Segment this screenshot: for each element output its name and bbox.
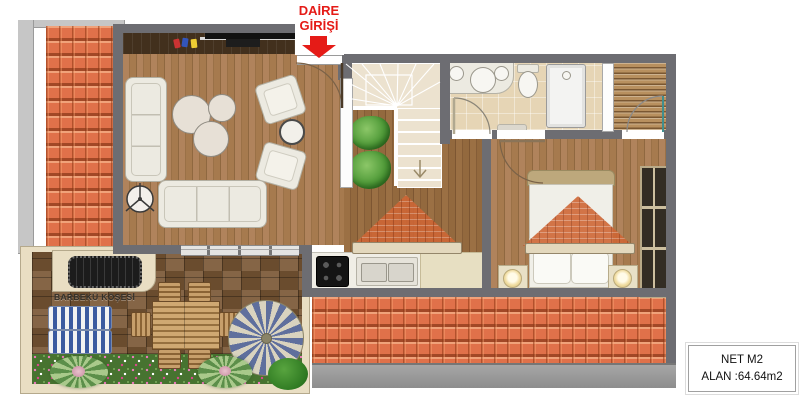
vanity-sink-left — [449, 66, 464, 81]
wall-bedroom-left — [482, 130, 491, 297]
lounger-1 — [48, 306, 112, 330]
barbecue-corner-label: BARBEKÜ KÖŞESİ — [54, 292, 135, 302]
living-terrace-window — [181, 245, 299, 256]
vanity-basin — [470, 67, 496, 93]
side-table — [279, 119, 305, 145]
barbecue-grill — [68, 256, 142, 288]
bedroom-door-gap — [497, 130, 545, 139]
cooktop — [316, 256, 349, 287]
balcony-partition — [602, 63, 614, 132]
dining-table — [152, 301, 220, 350]
net-area-box: NET M2 ALAN :64.64m2 — [688, 345, 796, 392]
balcony-door-gap — [622, 130, 664, 139]
kitchen-counter-beige — [420, 252, 484, 291]
kitchen-sink-unit — [356, 257, 418, 286]
left-roof-tiles — [46, 26, 114, 252]
armchair-seat — [263, 82, 299, 117]
entrance-label: DAİRE GİRİŞİ — [276, 4, 362, 33]
sofa-cushions — [131, 83, 161, 176]
parasol-pole — [261, 333, 272, 344]
agave-center-2 — [219, 366, 231, 376]
dining-table-split — [184, 301, 185, 348]
tv-stand — [226, 39, 260, 47]
dining-chair-1 — [158, 282, 181, 302]
sofa-cushions — [164, 186, 261, 222]
dining-chair-2 — [188, 282, 211, 302]
wall-top-right — [344, 54, 676, 63]
tv-console-books — [174, 37, 202, 49]
bed-duvet-left — [533, 250, 571, 284]
vanity-sink-right — [494, 66, 509, 81]
coffee-table-3 — [193, 121, 229, 157]
stairs-divider — [394, 106, 397, 186]
bottom-roof-eave — [312, 363, 676, 388]
wall-living-bottom-left — [113, 245, 181, 254]
toilet — [518, 71, 538, 98]
entrance-label-line1: DAİRE — [276, 4, 362, 19]
bush — [268, 358, 308, 390]
lounger-2 — [48, 330, 112, 354]
shower-drain — [562, 71, 571, 80]
net-area-line2: ALAN :64.64m2 — [689, 369, 795, 385]
dining-chair-3 — [158, 349, 181, 369]
bottom-roof-tiles — [312, 297, 666, 363]
entrance-arrow-head-icon — [302, 45, 336, 58]
skylight-rail-bedroom — [525, 243, 635, 254]
bed-duvet-right — [571, 252, 609, 284]
bedside-lamp-right — [613, 269, 632, 288]
stairs-fan-edge — [346, 106, 396, 109]
sofa-left — [125, 77, 167, 182]
kitchen-sink-right — [388, 263, 414, 282]
wall-top-living — [113, 24, 295, 33]
dining-chair-5 — [131, 312, 151, 337]
agave-center-1 — [72, 366, 85, 377]
armchair-seat — [263, 149, 299, 182]
wall-left-living — [113, 24, 123, 254]
balcony-deck — [612, 63, 666, 130]
coffee-table-2 — [208, 94, 236, 122]
stairs-flight — [397, 108, 442, 188]
bedside-lamp-left — [503, 269, 522, 288]
kitchen-sink-left — [361, 263, 387, 282]
sofa-bottom — [158, 180, 267, 228]
stairs-fan-landing — [346, 63, 442, 110]
floorplan-canvas: DAİRE GİRİŞİ BARBEKÜ KÖŞESİ NET M2 ALAN … — [0, 0, 800, 407]
wall-right-exterior — [666, 54, 676, 386]
skylight-rail-hall — [352, 242, 462, 254]
entrance-label-line2: GİRİŞİ — [276, 19, 362, 34]
net-area-line1: NET M2 — [689, 352, 795, 368]
bath-door-gap — [452, 130, 492, 139]
left-roof-eave — [18, 20, 34, 254]
stairs-side-wall — [340, 78, 353, 188]
